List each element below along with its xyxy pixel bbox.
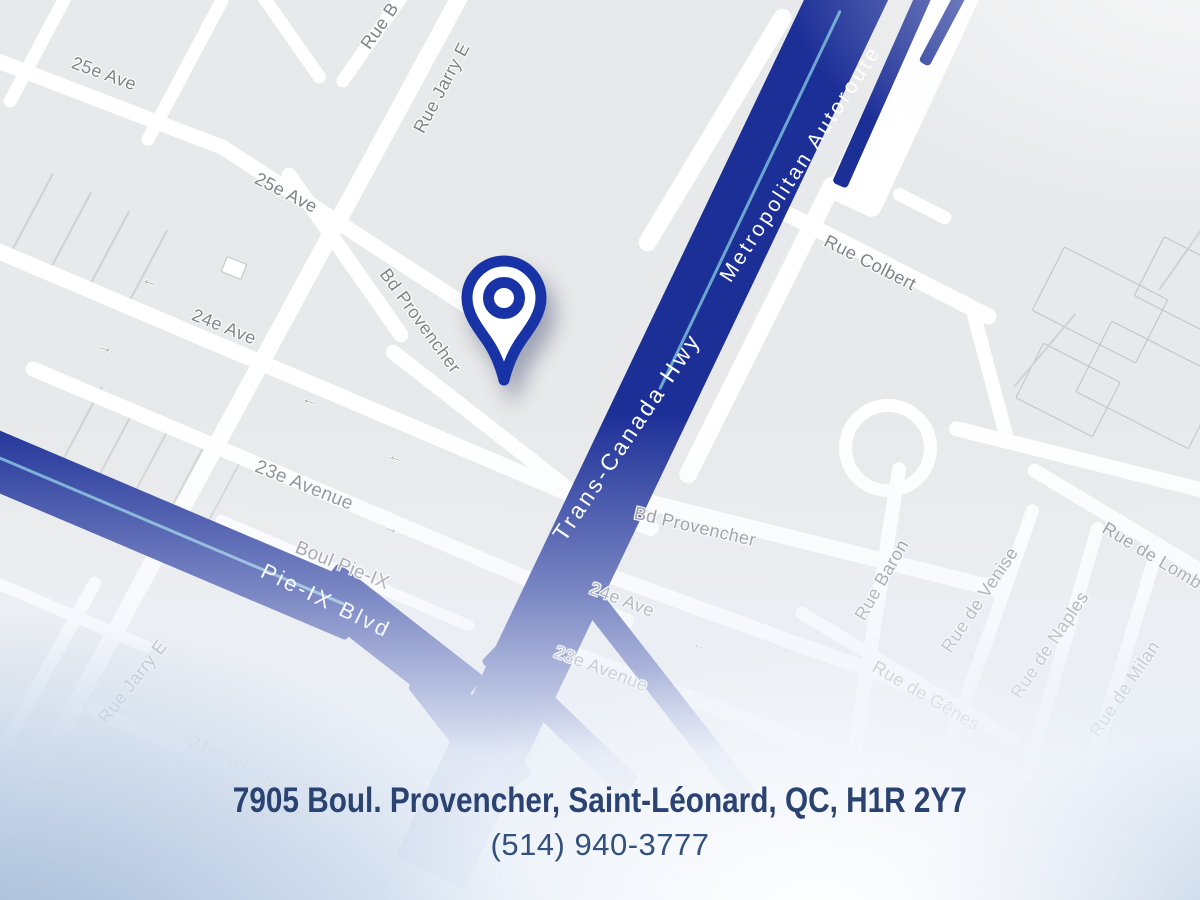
road-loop: [839, 399, 937, 497]
building-footprint: [221, 256, 248, 280]
lot-line: [86, 211, 130, 291]
road-crescent: [252, 0, 329, 86]
lot-line: [48, 192, 92, 272]
one-way-arrow-icon: ←: [386, 446, 406, 467]
map-canvas[interactable]: ← ← ← ← ← ← 25e Ave25e AveRue Jarry ERue…: [0, 0, 1200, 900]
road-rue-jarry: [0, 0, 512, 900]
location-pin-icon[interactable]: [457, 250, 551, 398]
footer: 7905 Boul. Provencher, Saint-Léonard, QC…: [0, 781, 1200, 863]
one-way-arrow-icon: ←: [94, 340, 114, 361]
road-bd-provencher-east: [589, 480, 1010, 600]
address-text: 7905 Boul. Provencher, Saint-Léonard, QC…: [233, 781, 967, 821]
lot-line: [10, 173, 54, 253]
one-way-arrow-icon: ←: [690, 634, 710, 655]
phone-text: (514) 940-3777: [0, 827, 1200, 863]
road-crescent: [334, 0, 416, 90]
road-rue-colbert: [966, 308, 1014, 442]
road-stub: [891, 186, 954, 227]
